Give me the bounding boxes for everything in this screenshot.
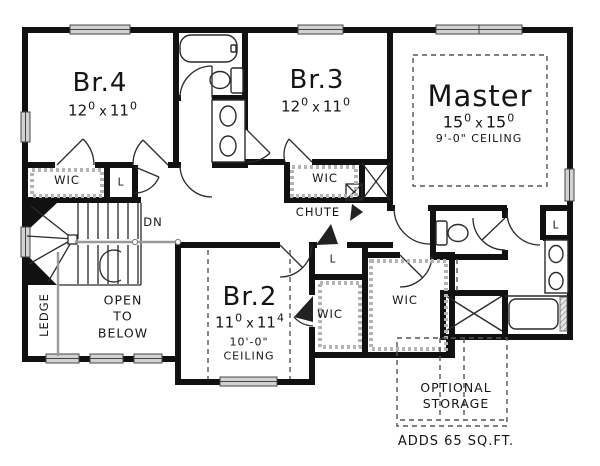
dim-depth: 15	[486, 112, 506, 131]
master-dimensions: 150x150	[443, 111, 515, 132]
dim-separator: x	[246, 316, 254, 331]
dim-depth: 11	[110, 101, 129, 119]
master-name: Master	[427, 78, 532, 114]
dim-width: 12	[68, 101, 87, 119]
linen-upper-label: L	[118, 176, 125, 189]
wic-br3-label: WIC	[312, 171, 338, 185]
dim-depth-inches: 4	[277, 311, 284, 324]
chute-label: CHUTE	[296, 205, 340, 219]
toilet-bowl	[448, 225, 468, 242]
optional-storage-label: OPTIONAL STORAGE	[420, 380, 491, 413]
sink	[549, 273, 563, 290]
linen-hall-label: L	[330, 253, 337, 266]
wic-master-label: WIC	[392, 293, 418, 307]
dim-depth: 11	[323, 97, 342, 115]
dim-width-inches: 0	[301, 95, 308, 108]
wic-br2-label: WIC	[317, 307, 343, 321]
dim-depth-inches: 0	[343, 95, 350, 108]
dim-width: 15	[443, 112, 463, 131]
br2-name: Br.2	[223, 281, 278, 314]
br4-dimensions: 120x110	[68, 99, 138, 120]
tub-deck-hatch	[560, 297, 567, 331]
dim-width-inches: 0	[88, 99, 95, 112]
dim-width-inches: 0	[464, 111, 471, 124]
floor-plan: Br.4 120x110 Br.3 120x110 Master 150x150…	[0, 0, 600, 466]
laundry-chute	[346, 163, 390, 221]
sink	[549, 246, 563, 263]
dim-depth: 11	[257, 313, 276, 331]
br2-dimensions: 110x114	[215, 311, 285, 332]
dim-depth-inches: 0	[507, 111, 514, 124]
toilet-tank	[436, 221, 447, 245]
br2-ceiling-label: 10'-0" CEILING	[224, 335, 275, 363]
dim-separator: x	[99, 104, 107, 119]
optional-storage-note: ADDS 65 SQ.FT.	[398, 434, 514, 450]
chute-leader	[350, 204, 363, 221]
master-tub	[509, 299, 558, 329]
linen-master-label: L	[553, 219, 560, 232]
br4-name: Br.4	[73, 67, 128, 100]
dim-depth-inches: 0	[130, 99, 137, 112]
dim-width: 12	[281, 97, 300, 115]
dim-width: 11	[215, 313, 234, 331]
dim-separator: x	[475, 116, 483, 131]
br3-name: Br.3	[290, 64, 345, 97]
toilet-tank	[231, 68, 243, 93]
tub-faucet	[231, 45, 236, 52]
open-to-below-label: OPEN TO BELOW	[98, 293, 148, 342]
dim-width-inches: 0	[235, 311, 242, 324]
linen-door-leaf	[316, 224, 338, 245]
wic-br4-label: WIC	[54, 173, 80, 187]
sink	[220, 136, 236, 156]
master-ceiling-label: 9'-0" CEILING	[436, 132, 523, 146]
toilet-bowl	[210, 72, 230, 89]
sink	[220, 106, 236, 126]
bathtub	[180, 35, 237, 62]
dim-separator: x	[312, 100, 320, 115]
br3-dimensions: 120x110	[281, 95, 351, 116]
wic-door-leaf	[294, 296, 313, 322]
stairs-down-label: DN	[143, 215, 162, 229]
ledge-label: LEDGE	[37, 293, 51, 337]
